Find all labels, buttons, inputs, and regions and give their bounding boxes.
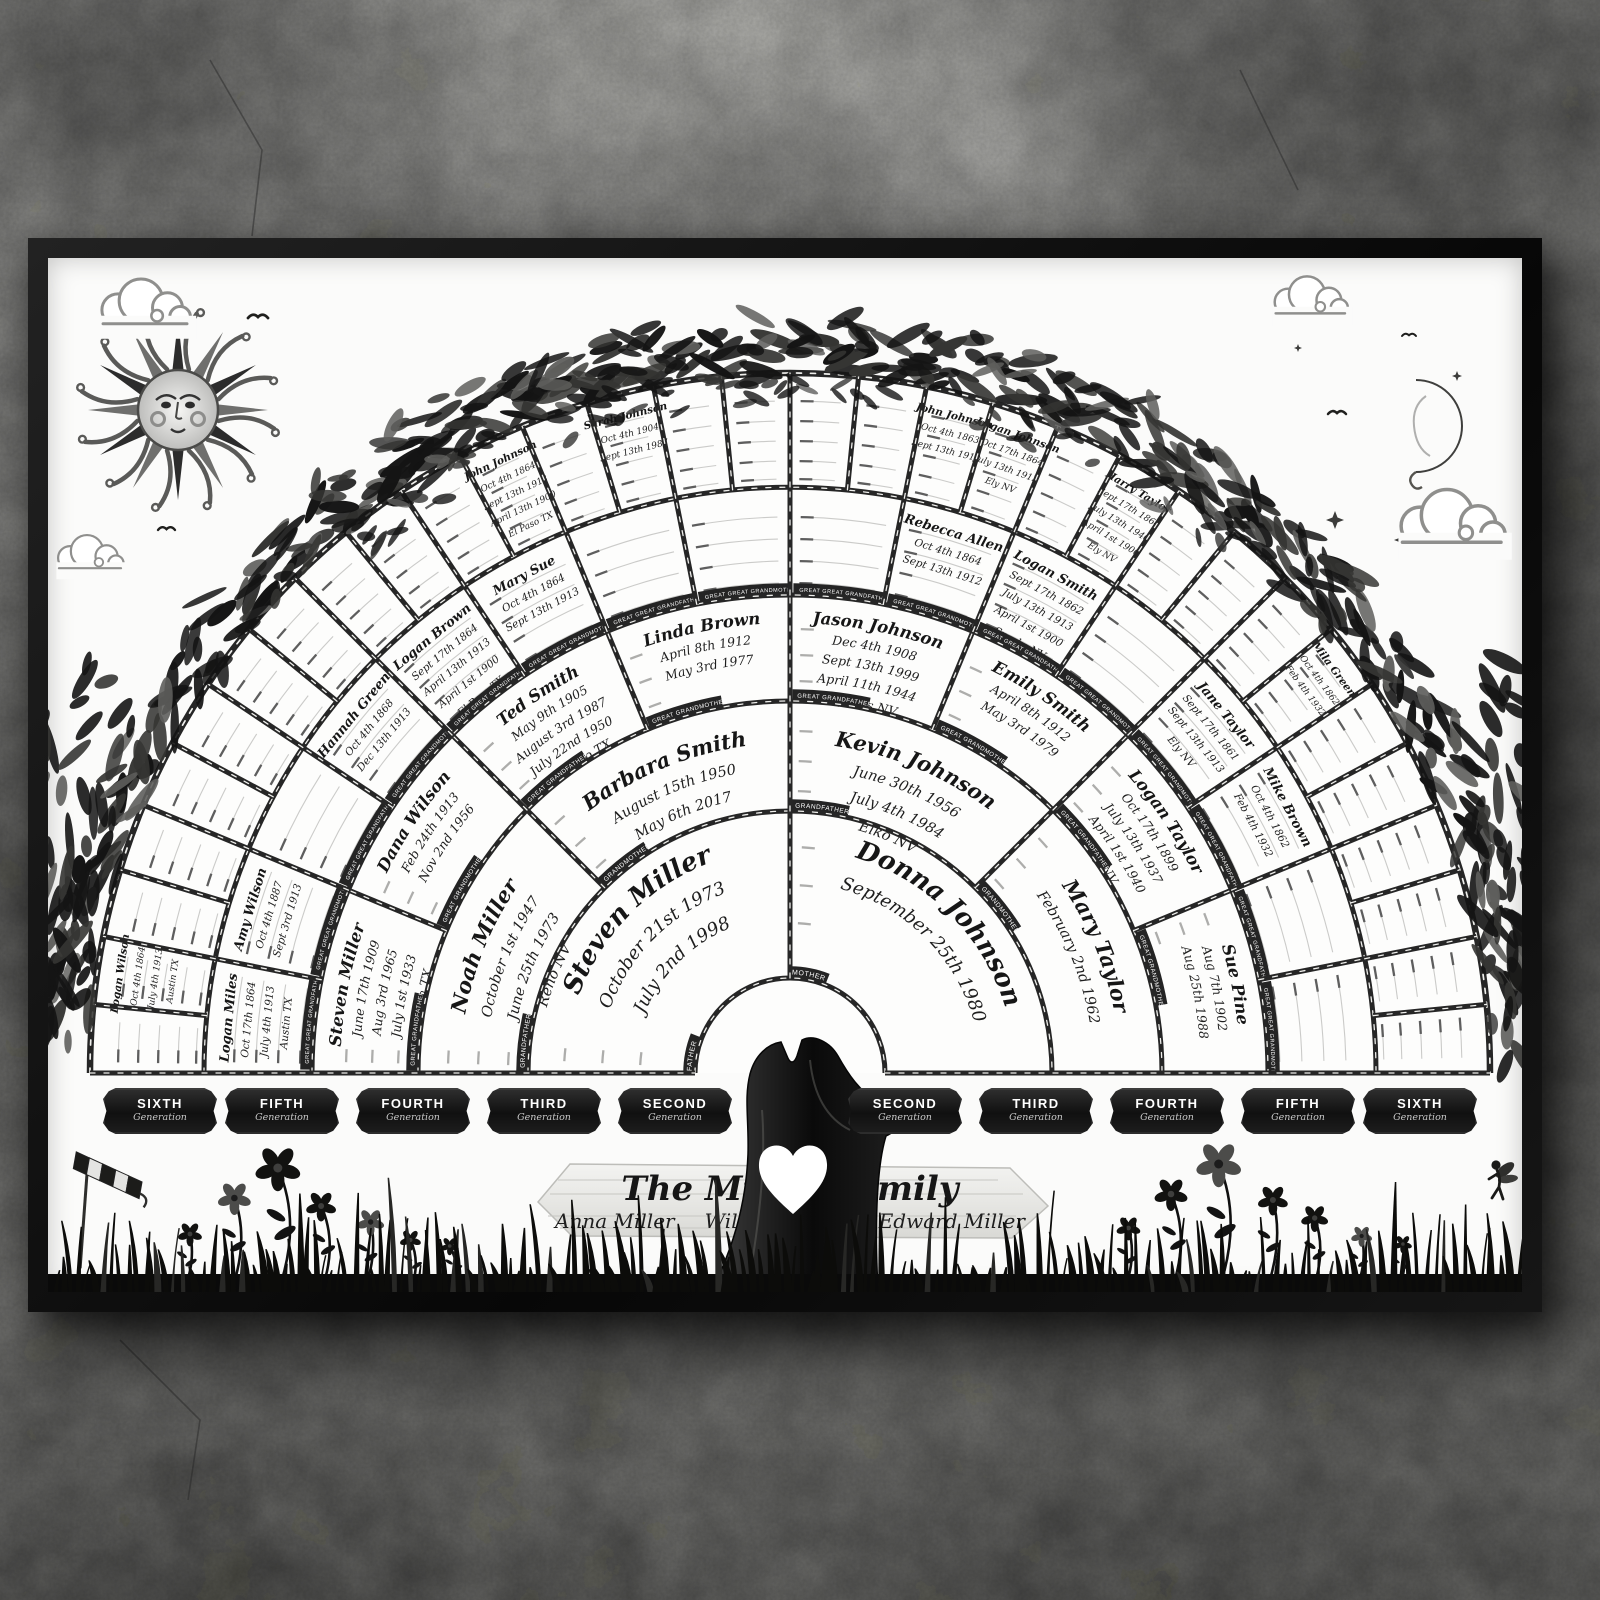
generation-plaque-sixth-left: SIXTHGeneration xyxy=(103,1088,217,1134)
star-icon xyxy=(1294,344,1302,352)
cloud-icon xyxy=(1273,276,1353,325)
generation-plaque-fifth-right: FIFTHGeneration xyxy=(1241,1088,1355,1134)
fairy-icon xyxy=(1489,1159,1518,1199)
cloud-icon xyxy=(100,279,197,339)
family-fan-chart-svg: Steven MillerOctober 21st 1973July 2nd 1… xyxy=(48,258,1522,1292)
moon-icon xyxy=(1410,380,1462,489)
star-icon xyxy=(1326,511,1344,529)
framed-family-tree-poster: Steven MillerOctober 21st 1973July 2nd 1… xyxy=(28,238,1542,1312)
sun-icon xyxy=(77,309,279,511)
generation-plaque-third-left: THIRDGeneration xyxy=(487,1088,601,1134)
cloud-icon xyxy=(56,535,127,579)
generation-plaque-second-right: SECONDGeneration xyxy=(848,1088,962,1134)
role-label: GREAT GREAT GREAT GRANDFATHER xyxy=(48,258,453,493)
generation-plaque-third-right: THIRDGeneration xyxy=(979,1088,1093,1134)
bird-icon xyxy=(1328,411,1346,414)
bird-icon xyxy=(248,315,268,318)
poster-canvas: Steven MillerOctober 21st 1973July 2nd 1… xyxy=(48,258,1522,1292)
generation-plaque-fourth-right: FOURTHGeneration xyxy=(1110,1088,1224,1134)
bird-icon xyxy=(158,527,175,530)
generation-plaque-sixth-right: SIXTHGeneration xyxy=(1363,1088,1477,1134)
bird-icon xyxy=(1402,334,1416,336)
generation-plaque-fifth-left: FIFTHGeneration xyxy=(225,1088,339,1134)
cloud-icon xyxy=(1398,490,1511,560)
generation-plaque-second-left: SECONDGeneration xyxy=(618,1088,732,1134)
star-icon xyxy=(1452,371,1462,381)
generation-plaque-fourth-left: FOURTHGeneration xyxy=(356,1088,470,1134)
